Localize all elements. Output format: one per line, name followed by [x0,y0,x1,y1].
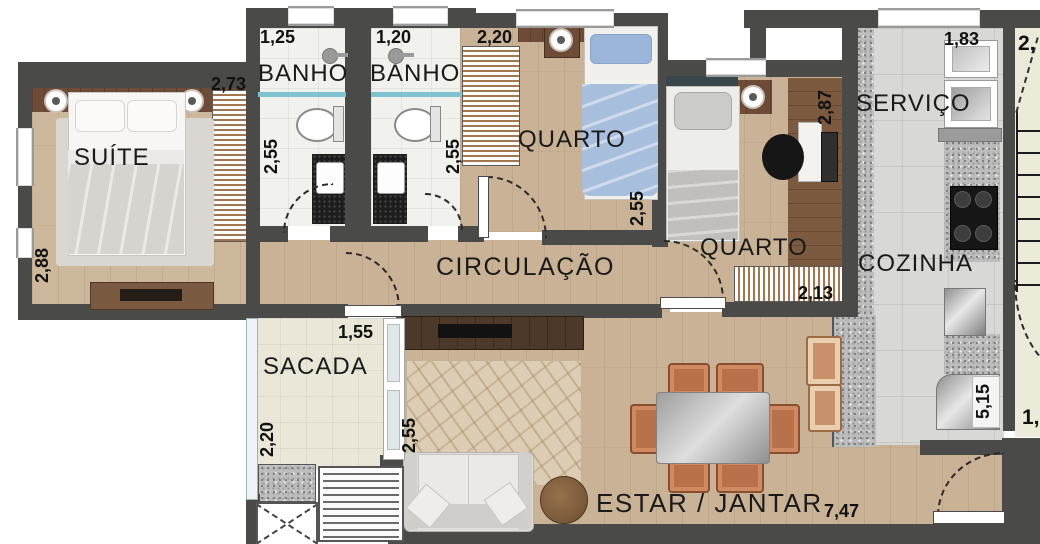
toilet [296,108,338,142]
shower-glass-partition [258,92,346,97]
dim-quarto2-wardrobe: 2,13 [798,283,833,304]
burner-icon [954,191,971,208]
duct-shaft [256,502,318,544]
room-label-banho2: BANHO [370,60,460,88]
wall [542,230,668,245]
shower-arm [402,53,414,57]
dim-quarto2-height: 2,87 [815,80,836,134]
sliding-door-pane [387,324,400,382]
burner-icon [975,191,992,208]
suite-duvet [68,164,184,254]
dim-sacada-width: 1,55 [338,322,373,343]
ceiling-light-icon [46,91,66,111]
dim-stair-top-partial: 2, [1018,32,1036,56]
hall-closet [462,46,520,166]
wall [722,302,858,317]
window [516,9,614,28]
dim-banho2-height: 2,55 [443,128,464,184]
armchair [806,336,842,386]
room-label-quarto2: QUARTO [700,234,808,262]
window [706,58,766,77]
wall [1003,25,1015,431]
dim-closet-width: 2,20 [477,27,512,48]
wall [842,25,858,317]
door-leaf-hall [344,305,402,317]
wall [246,304,348,318]
ceiling-light-icon [743,87,763,107]
room-label-banho1: BANHO [258,60,348,88]
dim-servico-width: 1,83 [944,29,979,50]
window [288,6,334,26]
door-leaf-quarto1 [478,176,489,238]
stairs-steps [1016,110,1040,292]
balcony-railing [246,318,258,500]
burner-icon [975,225,992,242]
dim-suite-width: 2,73 [211,74,246,95]
door-leaf-quarto2 [660,297,726,309]
dining-chair [766,404,800,454]
room-label-quarto1: QUARTO [518,126,626,154]
ceiling-light-icon [551,30,571,50]
wall [18,186,32,232]
dim-quarto1-height: 2,55 [627,180,648,236]
toilet-tank [333,106,344,142]
entry-door-leaf [933,511,1005,524]
quarto2-headboard [666,76,738,86]
pillow [590,34,652,64]
room-label-circulacao: CIRCULAÇÃO [436,253,615,282]
dim-banho1-width: 1,25 [260,27,295,48]
vanity-sink [377,162,405,194]
room-label-suite: SUÍTE [74,144,150,172]
dresser-handle [120,289,182,301]
shower-arm [336,53,348,57]
oven [944,288,986,336]
wall [1002,438,1040,544]
dim-suite-height: 2,88 [32,234,53,296]
louver-vent [318,466,404,542]
room-label-cozinha: COZINHA [858,250,973,278]
toilet-tank [430,106,441,142]
dim-living-rug: 2,55 [399,408,420,462]
pillow [674,92,732,130]
room-label-estar: ESTAR / JANTAR [596,488,823,519]
pillow [127,100,177,132]
sink-counter [944,334,1000,374]
dim-banho2-width: 1,20 [376,27,411,48]
tv [438,324,512,338]
monitor [821,132,838,182]
dim-cozinha-height: 5,15 [973,377,994,425]
burner-icon [954,225,971,242]
window [393,6,448,26]
window [16,128,34,186]
wall [246,226,288,242]
desk-chair [762,134,804,180]
shower-glass-partition [371,92,461,97]
side-table [540,476,588,524]
dim-estar-width: 7,47 [824,501,859,522]
armchair [808,384,842,432]
dim-banho1-height: 2,55 [261,128,282,184]
floor-plan: SUÍTE BANHO BANHO QUARTO QUARTO SERVIÇO … [0,0,1040,544]
room-label-servico: SERVIÇO [856,90,971,118]
window [878,8,980,28]
dim-sacada-height: 2,20 [257,412,278,466]
dining-table [656,392,770,464]
dim-stair-side-partial: 1, [1022,406,1040,430]
wall [345,28,371,228]
service-divider-counter [938,128,1002,142]
room-label-sacada: SACADA [263,353,368,381]
quarto2-duvet [668,170,738,240]
balcony-counter [258,464,316,502]
pillow [75,100,125,132]
wall [330,226,428,242]
